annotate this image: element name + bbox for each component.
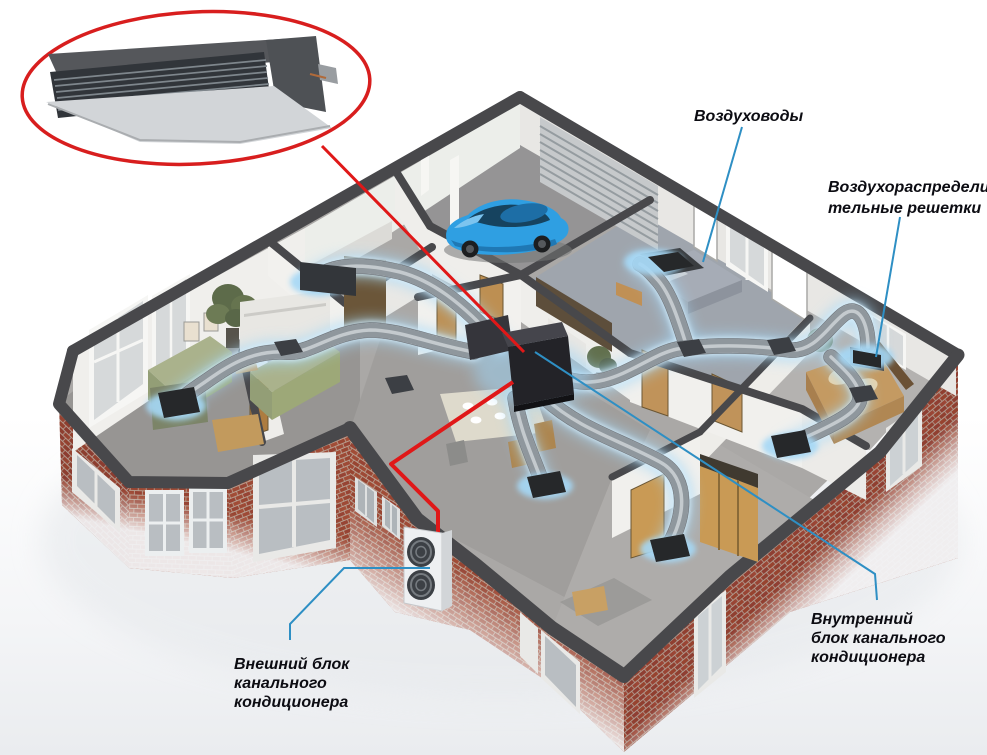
svg-text:Внешний блок: Внешний блок (234, 656, 350, 673)
svg-text:тельные решетки: тельные решетки (828, 200, 981, 217)
svg-text:кондиционера: кондиционера (234, 694, 348, 711)
svg-text:Воздуховоды: Воздуховоды (694, 108, 803, 125)
svg-text:канального: канального (234, 675, 327, 692)
svg-text:Внутренний: Внутренний (811, 611, 913, 628)
svg-text:блок канального: блок канального (811, 630, 946, 647)
svg-text:кондиционера: кондиционера (811, 649, 925, 666)
svg-text:Воздухораспредели: Воздухораспредели (828, 179, 987, 196)
